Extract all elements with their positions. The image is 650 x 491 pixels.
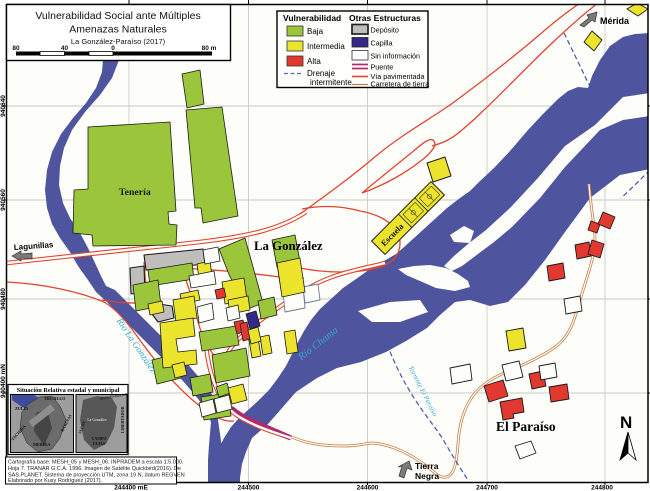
svg-text:Tierra: Tierra bbox=[415, 461, 439, 471]
svg-text:Situación Relativa estadal y m: Situación Relativa estadal y municipal bbox=[17, 387, 120, 394]
svg-text:N: N bbox=[620, 413, 632, 432]
svg-text:40: 40 bbox=[61, 45, 69, 52]
svg-text:TRUJILLO: TRUJILLO bbox=[44, 396, 66, 401]
svg-text:Otras Estructuras: Otras Estructuras bbox=[349, 13, 421, 23]
svg-text:El Paraíso: El Paraíso bbox=[496, 419, 556, 434]
svg-text:Cartografía base: MESH_05 y ME: Cartografía base: MESH_05 y MESH_06. INP… bbox=[8, 460, 184, 466]
svg-text:LIBERTADOR: LIBERTADOR bbox=[120, 406, 125, 433]
svg-text:Vulnerabilidad: Vulnerabilidad bbox=[283, 13, 341, 23]
svg-text:Alta: Alta bbox=[307, 57, 321, 66]
svg-text:244700: 244700 bbox=[476, 485, 498, 491]
svg-text:Negra: Negra bbox=[415, 471, 439, 481]
svg-text:244500: 244500 bbox=[238, 485, 260, 491]
svg-text:intermitente: intermitente bbox=[310, 78, 352, 87]
svg-text:Capilla: Capilla bbox=[371, 39, 393, 48]
svg-text:Amenazas Naturales: Amenazas Naturales bbox=[69, 24, 166, 36]
svg-text:940560: 940560 bbox=[0, 189, 7, 211]
svg-text:Tenería: Tenería bbox=[119, 187, 151, 198]
svg-text:80 m: 80 m bbox=[202, 45, 217, 52]
svg-text:Drenaje: Drenaje bbox=[307, 69, 336, 78]
svg-text:940640: 940640 bbox=[0, 95, 7, 117]
svg-text:244400 mE: 244400 mE bbox=[114, 485, 148, 491]
svg-text:Intermedia: Intermedia bbox=[307, 42, 345, 51]
svg-text:940480: 940480 bbox=[0, 288, 7, 310]
svg-text:Elaborado por Kusy Rodríguez (: Elaborado por Kusy Rodríguez (2017). bbox=[8, 478, 103, 484]
svg-text:244800: 244800 bbox=[591, 485, 613, 491]
svg-text:Vulnerabilidad Social ante Múl: Vulnerabilidad Social ante Múltiples bbox=[35, 10, 200, 22]
svg-text:Hoja 7. TRANAR G C.A. 1996. Im: Hoja 7. TRANAR G C.A. 1996. Imagen de Sa… bbox=[8, 466, 181, 472]
svg-text:La González-Paraíso (2017): La González-Paraíso (2017) bbox=[71, 37, 166, 46]
svg-text:ELIAS: ELIAS bbox=[93, 441, 106, 446]
svg-text:Depósito: Depósito bbox=[371, 26, 399, 35]
svg-text:244600: 244600 bbox=[357, 485, 379, 491]
svg-text:La González: La González bbox=[87, 418, 107, 422]
svg-text:MERIDA: MERIDA bbox=[33, 442, 50, 447]
svg-text:Baja: Baja bbox=[307, 27, 324, 36]
svg-text:Carretera de tierra: Carretera de tierra bbox=[371, 80, 430, 89]
svg-text:940400 mN: 940400 mN bbox=[0, 364, 7, 398]
svg-text:80: 80 bbox=[12, 45, 20, 52]
svg-text:0: 0 bbox=[111, 45, 115, 52]
svg-text:ZULIA: ZULIA bbox=[15, 406, 28, 411]
svg-text:La González: La González bbox=[254, 239, 323, 253]
svg-text:Sin información: Sin información bbox=[371, 52, 421, 61]
svg-text:Puente: Puente bbox=[371, 63, 394, 72]
svg-text:Mérida: Mérida bbox=[600, 16, 630, 26]
